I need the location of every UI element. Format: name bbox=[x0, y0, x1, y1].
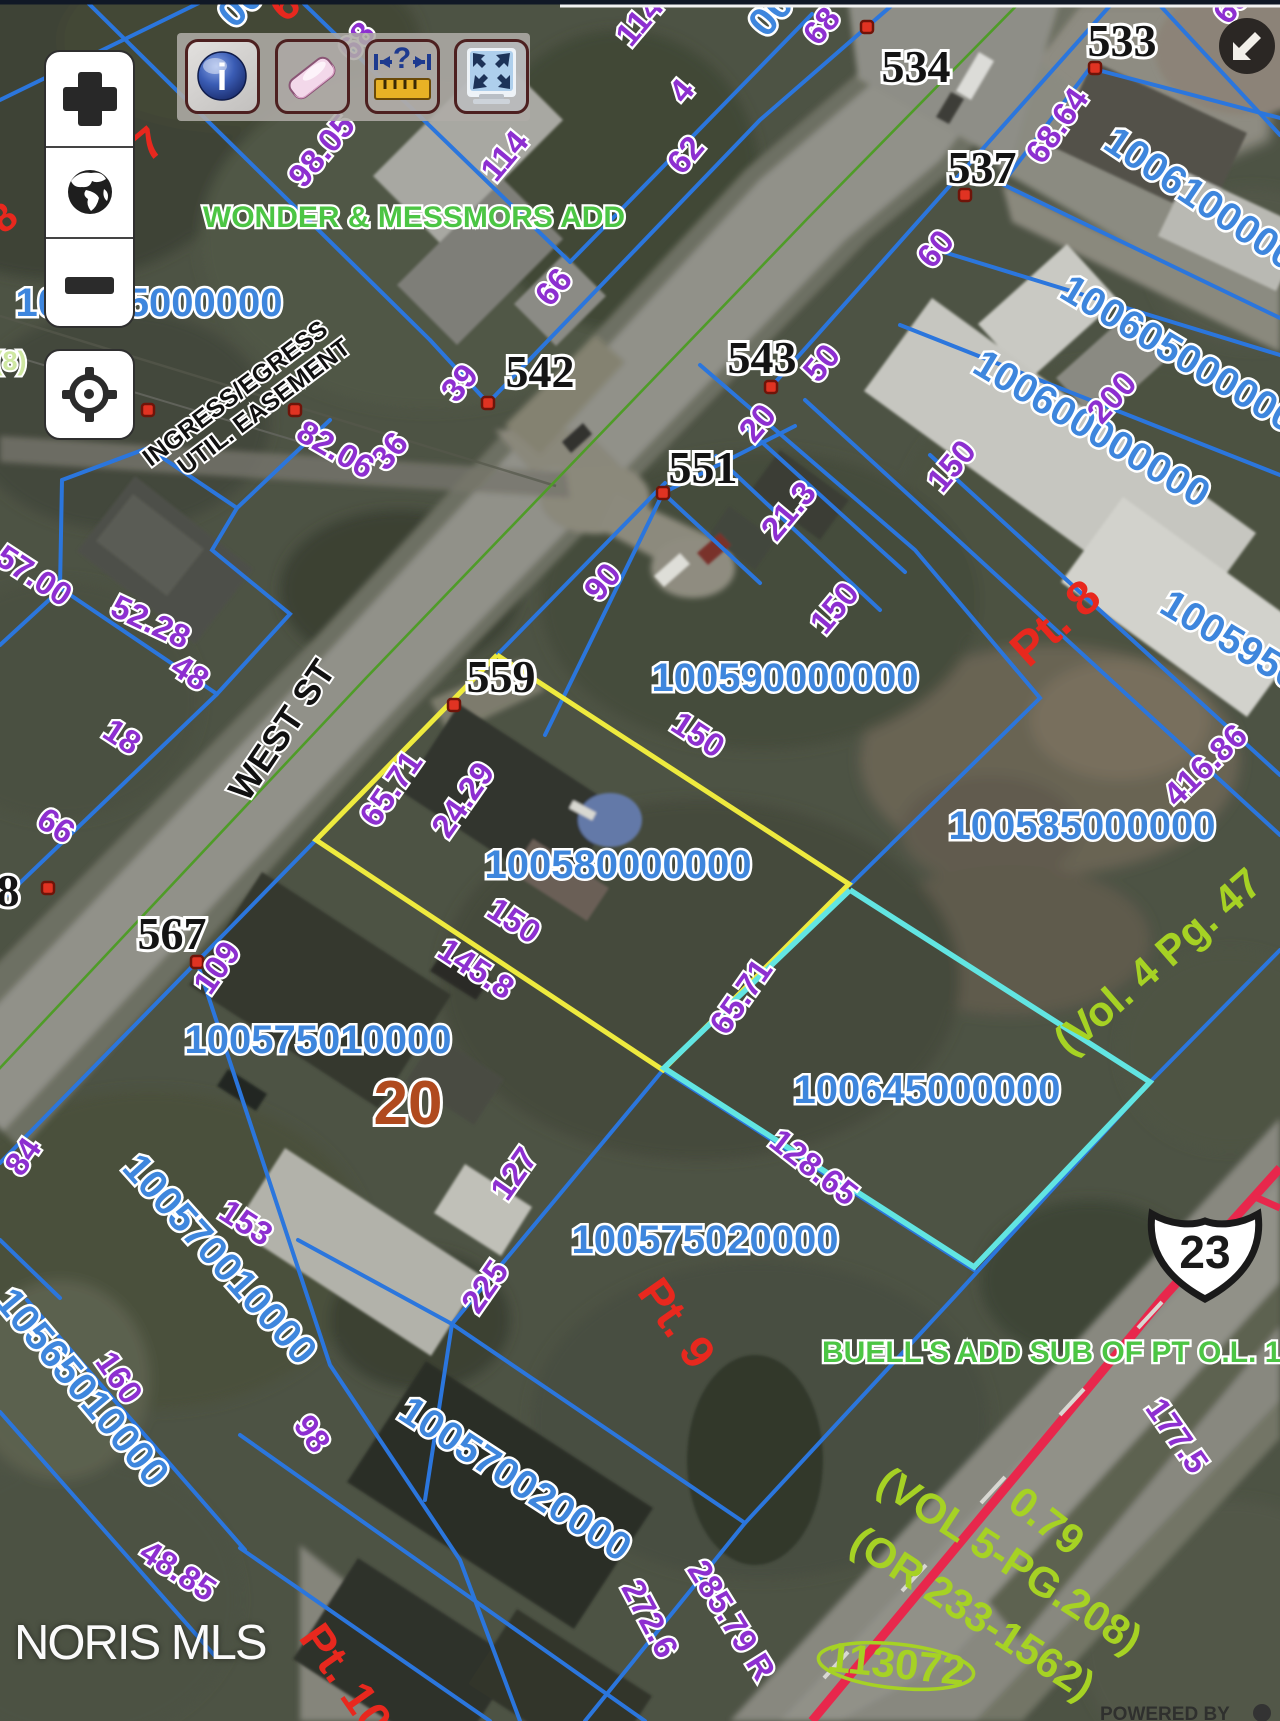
svg-text:NORIS MLS: NORIS MLS bbox=[14, 1616, 266, 1670]
svg-text:100645000000: 100645000000 bbox=[794, 1068, 1061, 1112]
svg-text:534: 534 bbox=[882, 41, 951, 92]
svg-text:i: i bbox=[217, 57, 228, 99]
svg-text:537: 537 bbox=[948, 142, 1017, 193]
svg-text:100575010000: 100575010000 bbox=[185, 1018, 452, 1062]
svg-text:23: 23 bbox=[1179, 1226, 1230, 1278]
svg-text:20: 20 bbox=[374, 1069, 443, 1138]
svg-text:100590000000: 100590000000 bbox=[652, 656, 919, 700]
svg-text:533: 533 bbox=[1088, 15, 1157, 66]
svg-text:?: ? bbox=[393, 42, 411, 75]
svg-text:559: 559 bbox=[467, 651, 536, 702]
svg-text:100575020000: 100575020000 bbox=[572, 1218, 839, 1262]
svg-text:WONDER & MESSMORS ADD: WONDER & MESSMORS ADD bbox=[203, 201, 625, 234]
svg-text:567: 567 bbox=[138, 908, 207, 959]
svg-text:100580000000: 100580000000 bbox=[485, 843, 752, 887]
svg-text:543: 543 bbox=[728, 332, 797, 383]
svg-text:100585000000: 100585000000 bbox=[949, 804, 1216, 848]
svg-text:(8): (8) bbox=[0, 346, 27, 376]
svg-text:8: 8 bbox=[0, 865, 20, 916]
svg-text:BUELL'S ADD SUB OF PT O.L. 1: BUELL'S ADD SUB OF PT O.L. 1 bbox=[822, 1336, 1280, 1369]
svg-text:POWERED BY: POWERED BY bbox=[1100, 1704, 1230, 1721]
svg-text:542: 542 bbox=[506, 346, 575, 397]
svg-text:551: 551 bbox=[669, 442, 738, 493]
